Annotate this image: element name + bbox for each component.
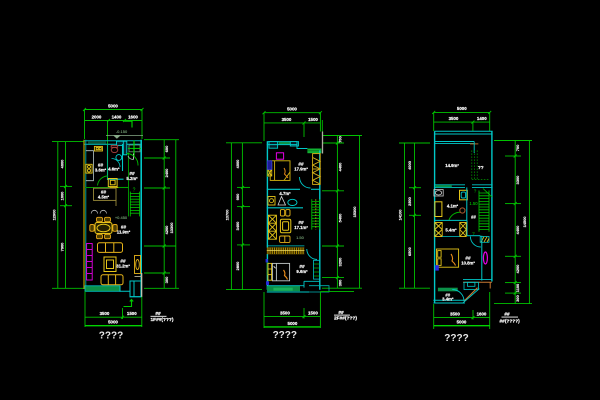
- svg-text:-0.150: -0.150: [116, 129, 128, 134]
- svg-text:4000: 4000: [60, 160, 65, 169]
- svg-text:5000: 5000: [108, 320, 118, 325]
- svg-text:5000: 5000: [457, 106, 467, 111]
- svg-text:1500: 1500: [127, 311, 137, 316]
- svg-text:300: 300: [337, 280, 342, 287]
- svg-text:2500: 2500: [407, 197, 412, 206]
- svg-text:????: ????: [444, 333, 468, 344]
- svg-text:2800: 2800: [235, 262, 240, 271]
- svg-text:14.9m²: 14.9m²: [445, 163, 459, 168]
- svg-text:??: ??: [478, 165, 484, 171]
- svg-text:11.9m²: 11.9m²: [117, 230, 131, 235]
- svg-text:4.1m²: 4.1m²: [447, 204, 459, 209]
- svg-text:13700: 13700: [224, 210, 229, 221]
- svg-text:1600: 1600: [477, 312, 487, 317]
- svg-text:14100: 14100: [397, 210, 402, 221]
- svg-text:4.6m²: 4.6m²: [108, 167, 120, 172]
- svg-text:4000: 4000: [235, 160, 240, 169]
- svg-text:700: 700: [515, 145, 520, 152]
- svg-text:4.5m²: 4.5m²: [98, 195, 110, 200]
- svg-text:300: 300: [515, 295, 520, 302]
- svg-text:5.2m²: 5.2m²: [126, 176, 138, 181]
- svg-text:2F##(???): 2F##(???): [334, 316, 357, 322]
- svg-text:17.1m²: 17.1m²: [294, 225, 308, 230]
- svg-text:1600: 1600: [128, 115, 138, 120]
- svg-text:15300: 15300: [352, 207, 357, 218]
- svg-text:3300: 3300: [515, 176, 520, 185]
- svg-text:3.4m²: 3.4m²: [442, 297, 454, 302]
- svg-text:12900: 12900: [52, 210, 57, 221]
- svg-text:2400: 2400: [164, 169, 169, 178]
- svg-text:3500: 3500: [449, 116, 459, 121]
- svg-text:1.50: 1.50: [296, 235, 305, 240]
- svg-text:##: ##: [471, 215, 476, 220]
- svg-text:600: 600: [164, 146, 169, 153]
- svg-text:6500: 6500: [407, 247, 412, 256]
- svg-text:3500: 3500: [100, 311, 110, 316]
- svg-text:300: 300: [164, 277, 169, 284]
- svg-text:2000: 2000: [92, 115, 102, 120]
- svg-text:1000: 1000: [60, 192, 65, 201]
- svg-text:##(????): ##(????): [500, 318, 521, 324]
- svg-text:5000: 5000: [287, 107, 297, 112]
- svg-text:1500: 1500: [308, 117, 318, 122]
- svg-text:3.6m²: 3.6m²: [95, 168, 107, 173]
- svg-text:?: ?: [133, 188, 136, 194]
- svg-text:?: ?: [474, 189, 477, 194]
- svg-text:3500: 3500: [450, 312, 460, 317]
- svg-text:????: ????: [273, 330, 297, 341]
- svg-text:4000: 4000: [407, 161, 412, 170]
- svg-text:1100: 1100: [515, 284, 520, 292]
- svg-text:5000: 5000: [288, 321, 298, 326]
- svg-text:900: 900: [235, 194, 240, 201]
- svg-text:3500: 3500: [282, 117, 292, 122]
- svg-text:700: 700: [337, 136, 342, 143]
- svg-text:14500: 14500: [522, 217, 527, 228]
- svg-text:+0.450: +0.450: [115, 215, 128, 220]
- svg-text:5400: 5400: [337, 214, 342, 223]
- svg-text:3500: 3500: [280, 311, 290, 316]
- svg-text:4.7m²: 4.7m²: [279, 191, 291, 196]
- svg-text:4400: 4400: [337, 163, 342, 172]
- svg-text:9.6m²: 9.6m²: [296, 269, 308, 274]
- svg-text:1F##(???): 1F##(???): [151, 317, 174, 323]
- svg-text:5.4m²: 5.4m²: [445, 228, 457, 233]
- svg-text:10.8m²: 10.8m²: [461, 261, 475, 266]
- svg-text:4400: 4400: [515, 226, 520, 235]
- svg-text:17.9m²: 17.9m²: [294, 167, 308, 172]
- svg-text:31.2m²: 31.2m²: [116, 264, 130, 269]
- svg-text:1400: 1400: [112, 115, 122, 120]
- svg-text:5000: 5000: [457, 320, 467, 325]
- svg-text:7900: 7900: [60, 243, 65, 252]
- svg-text:1500: 1500: [308, 311, 318, 316]
- svg-text:1400: 1400: [477, 116, 487, 121]
- svg-text:3200: 3200: [337, 258, 342, 267]
- svg-text:????: ????: [99, 331, 123, 342]
- svg-text:4200: 4200: [515, 265, 520, 274]
- svg-text:5000: 5000: [108, 104, 118, 109]
- svg-text:1.50: 1.50: [469, 201, 478, 206]
- svg-text:3400: 3400: [235, 222, 240, 231]
- svg-text:13300: 13300: [169, 223, 174, 234]
